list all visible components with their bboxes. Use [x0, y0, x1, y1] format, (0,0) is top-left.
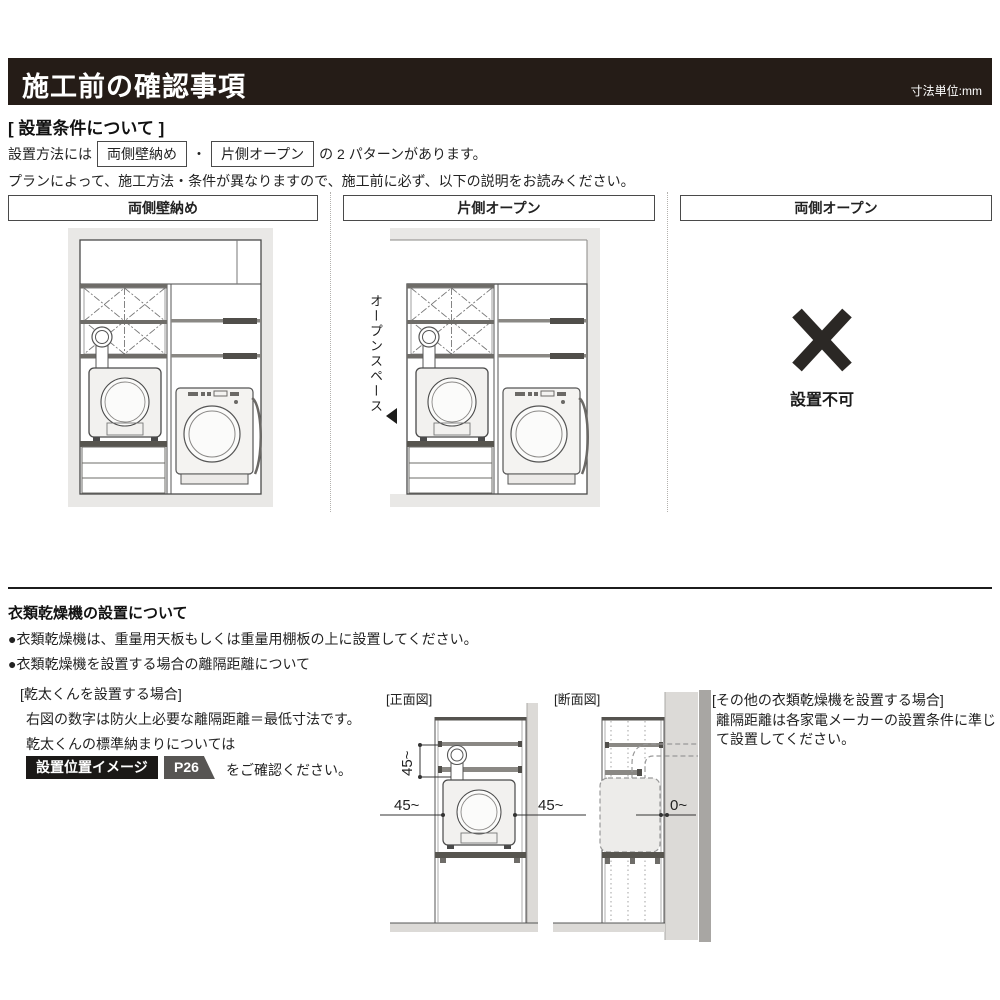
page-title: 施工前の確認事項	[22, 65, 246, 104]
wall-right	[665, 692, 698, 940]
wall-right	[527, 703, 538, 931]
gas-dryer	[89, 368, 161, 441]
intro-sep: ・	[192, 144, 206, 164]
intro-pre: 設置方法には	[8, 144, 92, 164]
counter-top	[435, 852, 526, 858]
section-view-label: [断面図]	[554, 692, 600, 707]
column-separator-2	[667, 192, 668, 512]
page: 施工前の確認事項 寸法単位:mm [ 設置条件について ] 設置方法には 両側壁…	[0, 0, 1000, 1000]
drawer-unit	[409, 447, 492, 493]
open-space-label: オープンスペース	[366, 294, 385, 414]
other-dryer-body: 離隔距離は各家電メーカーの設置条件に準じて設置してください。	[716, 711, 998, 749]
column-separator-1	[330, 192, 331, 512]
floor	[553, 923, 665, 932]
bullet-2: ●衣類乾燥機を設置する場合の離隔距離について	[8, 654, 310, 674]
pattern-box-1: 両側壁納め	[97, 141, 187, 167]
wall-top	[390, 228, 600, 240]
kanta-heading: [乾太くんを設置する場合]	[20, 684, 182, 704]
units-note: 寸法単位:mm	[911, 82, 982, 99]
not-allowed-caption: 設置不可	[680, 386, 964, 410]
header-bar: 施工前の確認事項 寸法単位:mm	[8, 58, 992, 105]
intro-note: プランによって、施工方法・条件が異なりますので、施工前に必ず、以下の説明をお読み…	[8, 171, 635, 191]
not-allowed-icon	[789, 305, 855, 375]
intro-post: の 2 パターンがあります。	[319, 144, 486, 164]
open-space-arrow-icon	[386, 408, 397, 424]
section1-title: [ 設置条件について ]	[8, 114, 164, 139]
vertical-divider-bar	[699, 690, 711, 942]
column-header-both-open: 両側オープン	[680, 195, 992, 221]
counter-top	[407, 441, 494, 447]
gas-dryer	[416, 368, 488, 441]
diagram-walled-both-sides	[60, 226, 280, 510]
not-allowed-block: 設置不可	[680, 305, 964, 410]
badge-page-ref: P26	[164, 756, 215, 779]
drum-washer	[503, 388, 588, 484]
section2-title: 衣類乾燥機の設置について	[8, 602, 188, 623]
intro-line: 設置方法には 両側壁納め ・ 片側オープン の 2 パターンがあります。	[8, 141, 487, 167]
other-dryer-heading: [その他の衣類乾燥機を設置する場合]	[712, 690, 944, 710]
pattern-box-2: 片側オープン	[211, 141, 314, 167]
kanta-line-1: 右図の数字は防火上必要な離隔距離＝最低寸法です。	[26, 709, 361, 729]
counter-top	[80, 441, 167, 447]
section-divider	[8, 587, 992, 589]
drawer-unit	[82, 447, 165, 493]
column-header-walled: 両側壁納め	[8, 195, 318, 221]
section-view-diagram: [断面図] 0~	[548, 688, 698, 940]
drum-washer	[176, 388, 261, 484]
kanta-line-3: をご確認ください。	[226, 760, 352, 780]
front-dim-vertical: 45~	[399, 750, 416, 776]
section-dim: 0~	[670, 797, 687, 814]
bullet-1: ●衣類乾燥機は、重量用天板もしくは重量用棚板の上に設置してください。	[8, 629, 478, 649]
badge-install-position-image: 設置位置イメージ	[26, 756, 158, 779]
gas-dryer	[443, 780, 515, 849]
wall-bottom	[390, 494, 600, 507]
counter-top	[602, 852, 664, 858]
front-dim-left: 45~	[394, 797, 420, 814]
floor	[390, 923, 538, 932]
front-view-label: [正面図]	[386, 692, 432, 707]
wall-right	[587, 228, 600, 507]
kanta-line-2: 乾太くんの標準納まりについては	[26, 734, 235, 754]
column-header-one-open: 片側オープン	[343, 195, 655, 221]
